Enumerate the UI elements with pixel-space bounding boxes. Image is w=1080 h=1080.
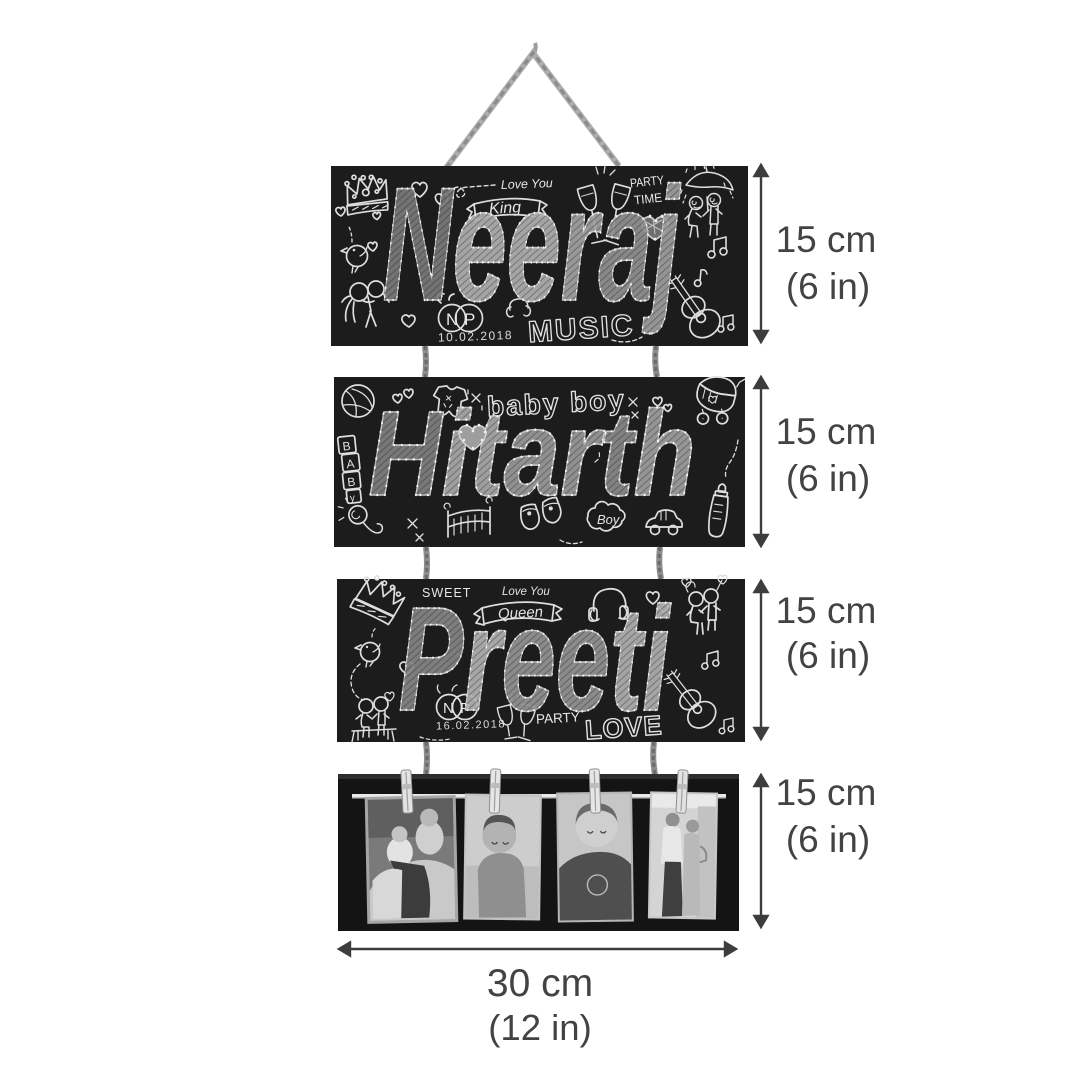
svg-text:15 cm: 15 cm xyxy=(776,590,877,631)
svg-text:Preeti: Preeti xyxy=(399,577,672,742)
svg-text:(6 in): (6 in) xyxy=(786,819,870,860)
svg-text:Hitarth: Hitarth xyxy=(369,385,696,521)
svg-text:30 cm: 30 cm xyxy=(487,962,593,1005)
svg-text:(6 in): (6 in) xyxy=(786,266,870,307)
svg-text:15 cm: 15 cm xyxy=(776,219,877,260)
svg-text:B: B xyxy=(347,475,356,490)
svg-text:(12 in): (12 in) xyxy=(488,1007,591,1048)
svg-text:Neeraj: Neeraj xyxy=(383,154,682,335)
svg-text:A: A xyxy=(346,457,355,472)
svg-text:(6 in): (6 in) xyxy=(786,458,870,499)
svg-text:(6 in): (6 in) xyxy=(786,635,870,676)
svg-text:15 cm: 15 cm xyxy=(776,772,877,813)
svg-text:15 cm: 15 cm xyxy=(776,411,877,452)
svg-text:B: B xyxy=(342,439,351,454)
